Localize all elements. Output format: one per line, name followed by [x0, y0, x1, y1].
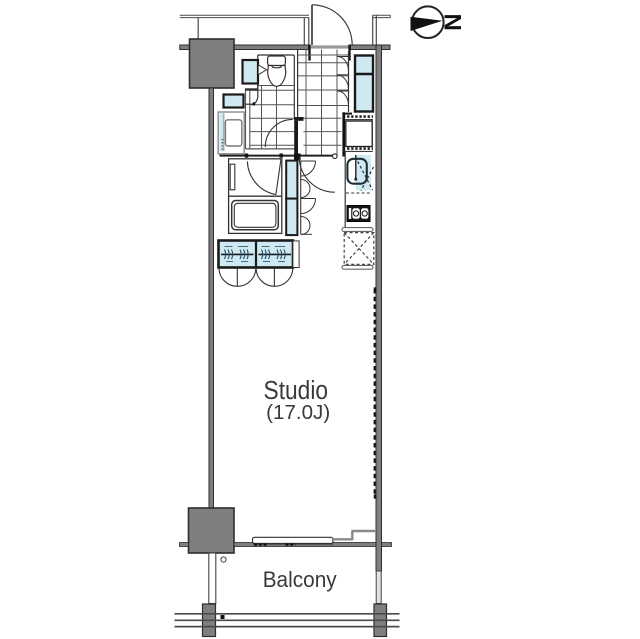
svg-text:(17.0J): (17.0J): [266, 401, 330, 424]
svg-text:N: N: [439, 14, 466, 31]
svg-text:Balcony: Balcony: [263, 567, 337, 592]
